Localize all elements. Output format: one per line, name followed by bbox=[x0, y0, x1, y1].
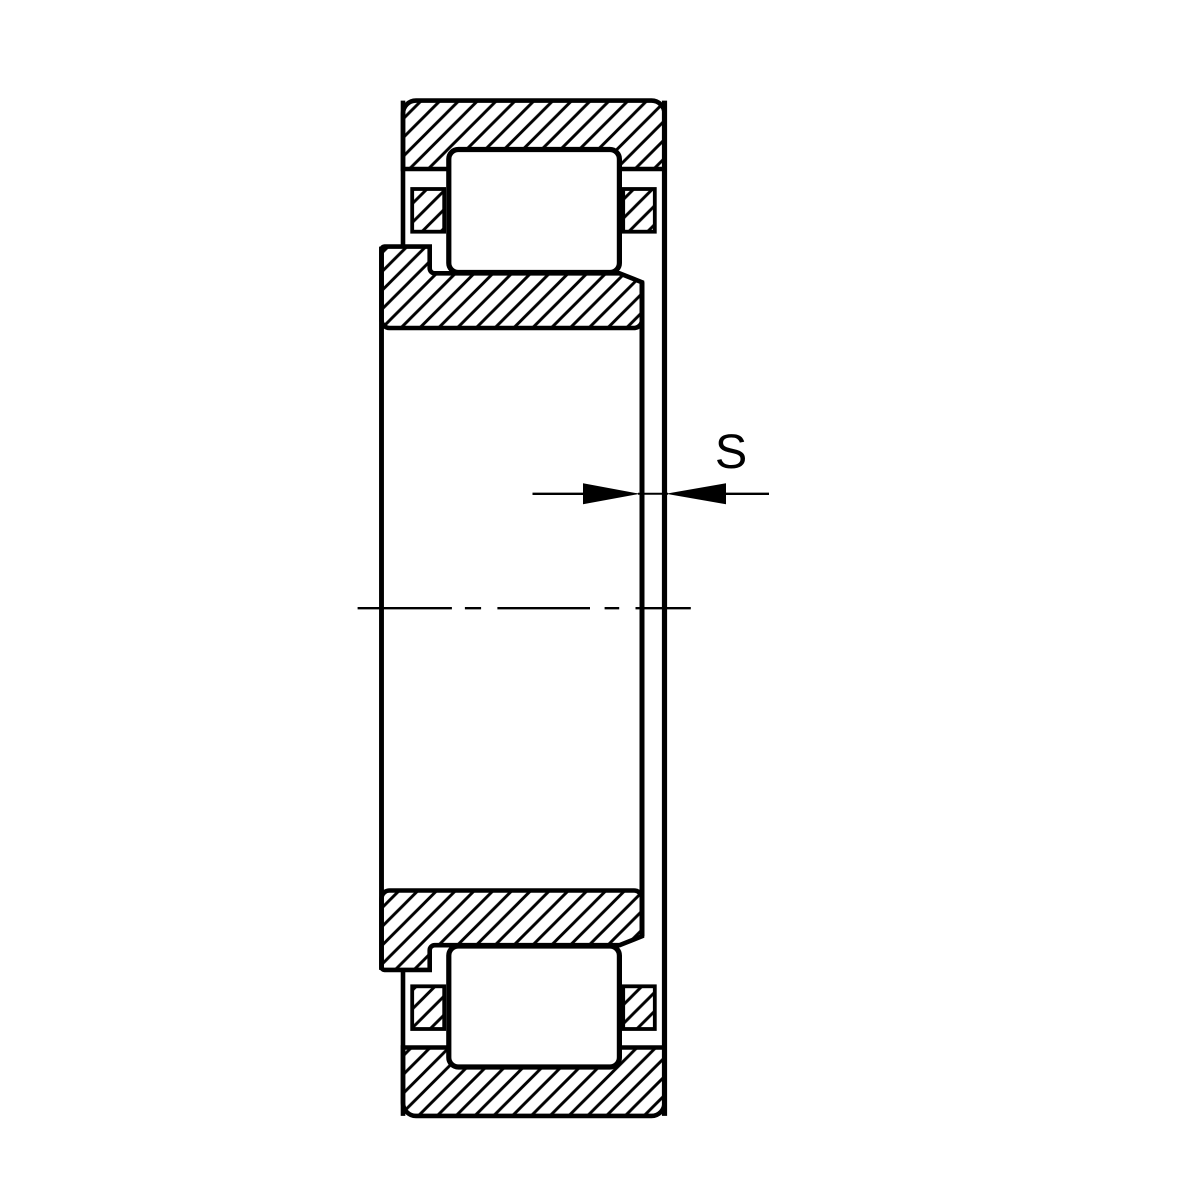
svg-text:S: S bbox=[715, 425, 747, 479]
